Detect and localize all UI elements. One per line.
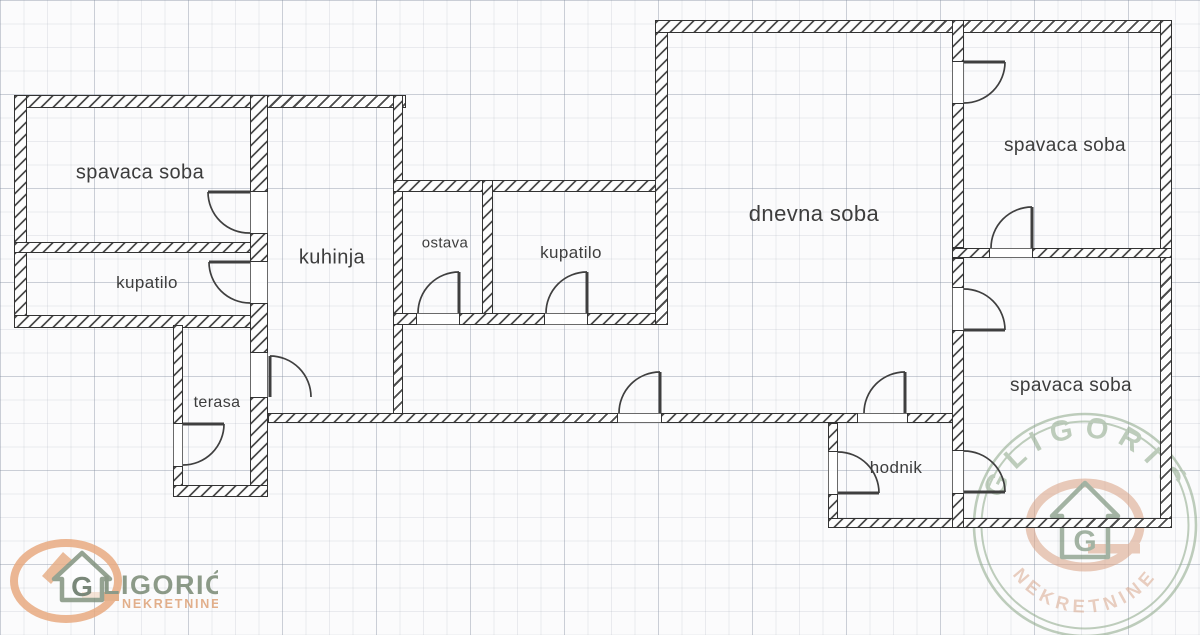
door-pantry bbox=[418, 272, 459, 313]
room-label-kitchen: kuhinja bbox=[299, 247, 365, 270]
door-living-bedroom3 bbox=[964, 289, 1005, 330]
door-bedroom1 bbox=[208, 192, 250, 233]
room-label-bedroom1: spavaca soba bbox=[76, 162, 204, 185]
room-label-bedroom2: spavaca soba bbox=[1004, 135, 1126, 157]
room-label-bedroom3: spavaca soba bbox=[1010, 375, 1132, 397]
room-label-bathroom1: kupatilo bbox=[116, 273, 178, 293]
door-hallway-bedroom3 bbox=[964, 451, 1005, 492]
floor-plan-canvas: G LIGORIĆ NEKRETNINE GLIGORIĆ NEKRETNINE… bbox=[0, 0, 1200, 635]
room-label-pantry: ostava bbox=[422, 235, 469, 252]
door-entrance bbox=[619, 372, 660, 413]
door-symbols bbox=[0, 0, 1200, 635]
room-label-hallway: hodnik bbox=[870, 458, 923, 478]
door-bedroom2-bedroom3 bbox=[991, 207, 1032, 248]
door-terrace-kitchen bbox=[270, 356, 311, 397]
door-hallway-living bbox=[864, 372, 905, 413]
room-label-bathroom2: kupatilo bbox=[540, 243, 602, 263]
door-bathroom1 bbox=[209, 262, 250, 303]
door-terrace bbox=[183, 424, 224, 465]
door-living-bedroom2 bbox=[964, 62, 1005, 103]
room-label-terrace: terasa bbox=[194, 394, 241, 412]
room-label-living: dnevna soba bbox=[749, 201, 879, 227]
door-bathroom2 bbox=[546, 272, 587, 313]
